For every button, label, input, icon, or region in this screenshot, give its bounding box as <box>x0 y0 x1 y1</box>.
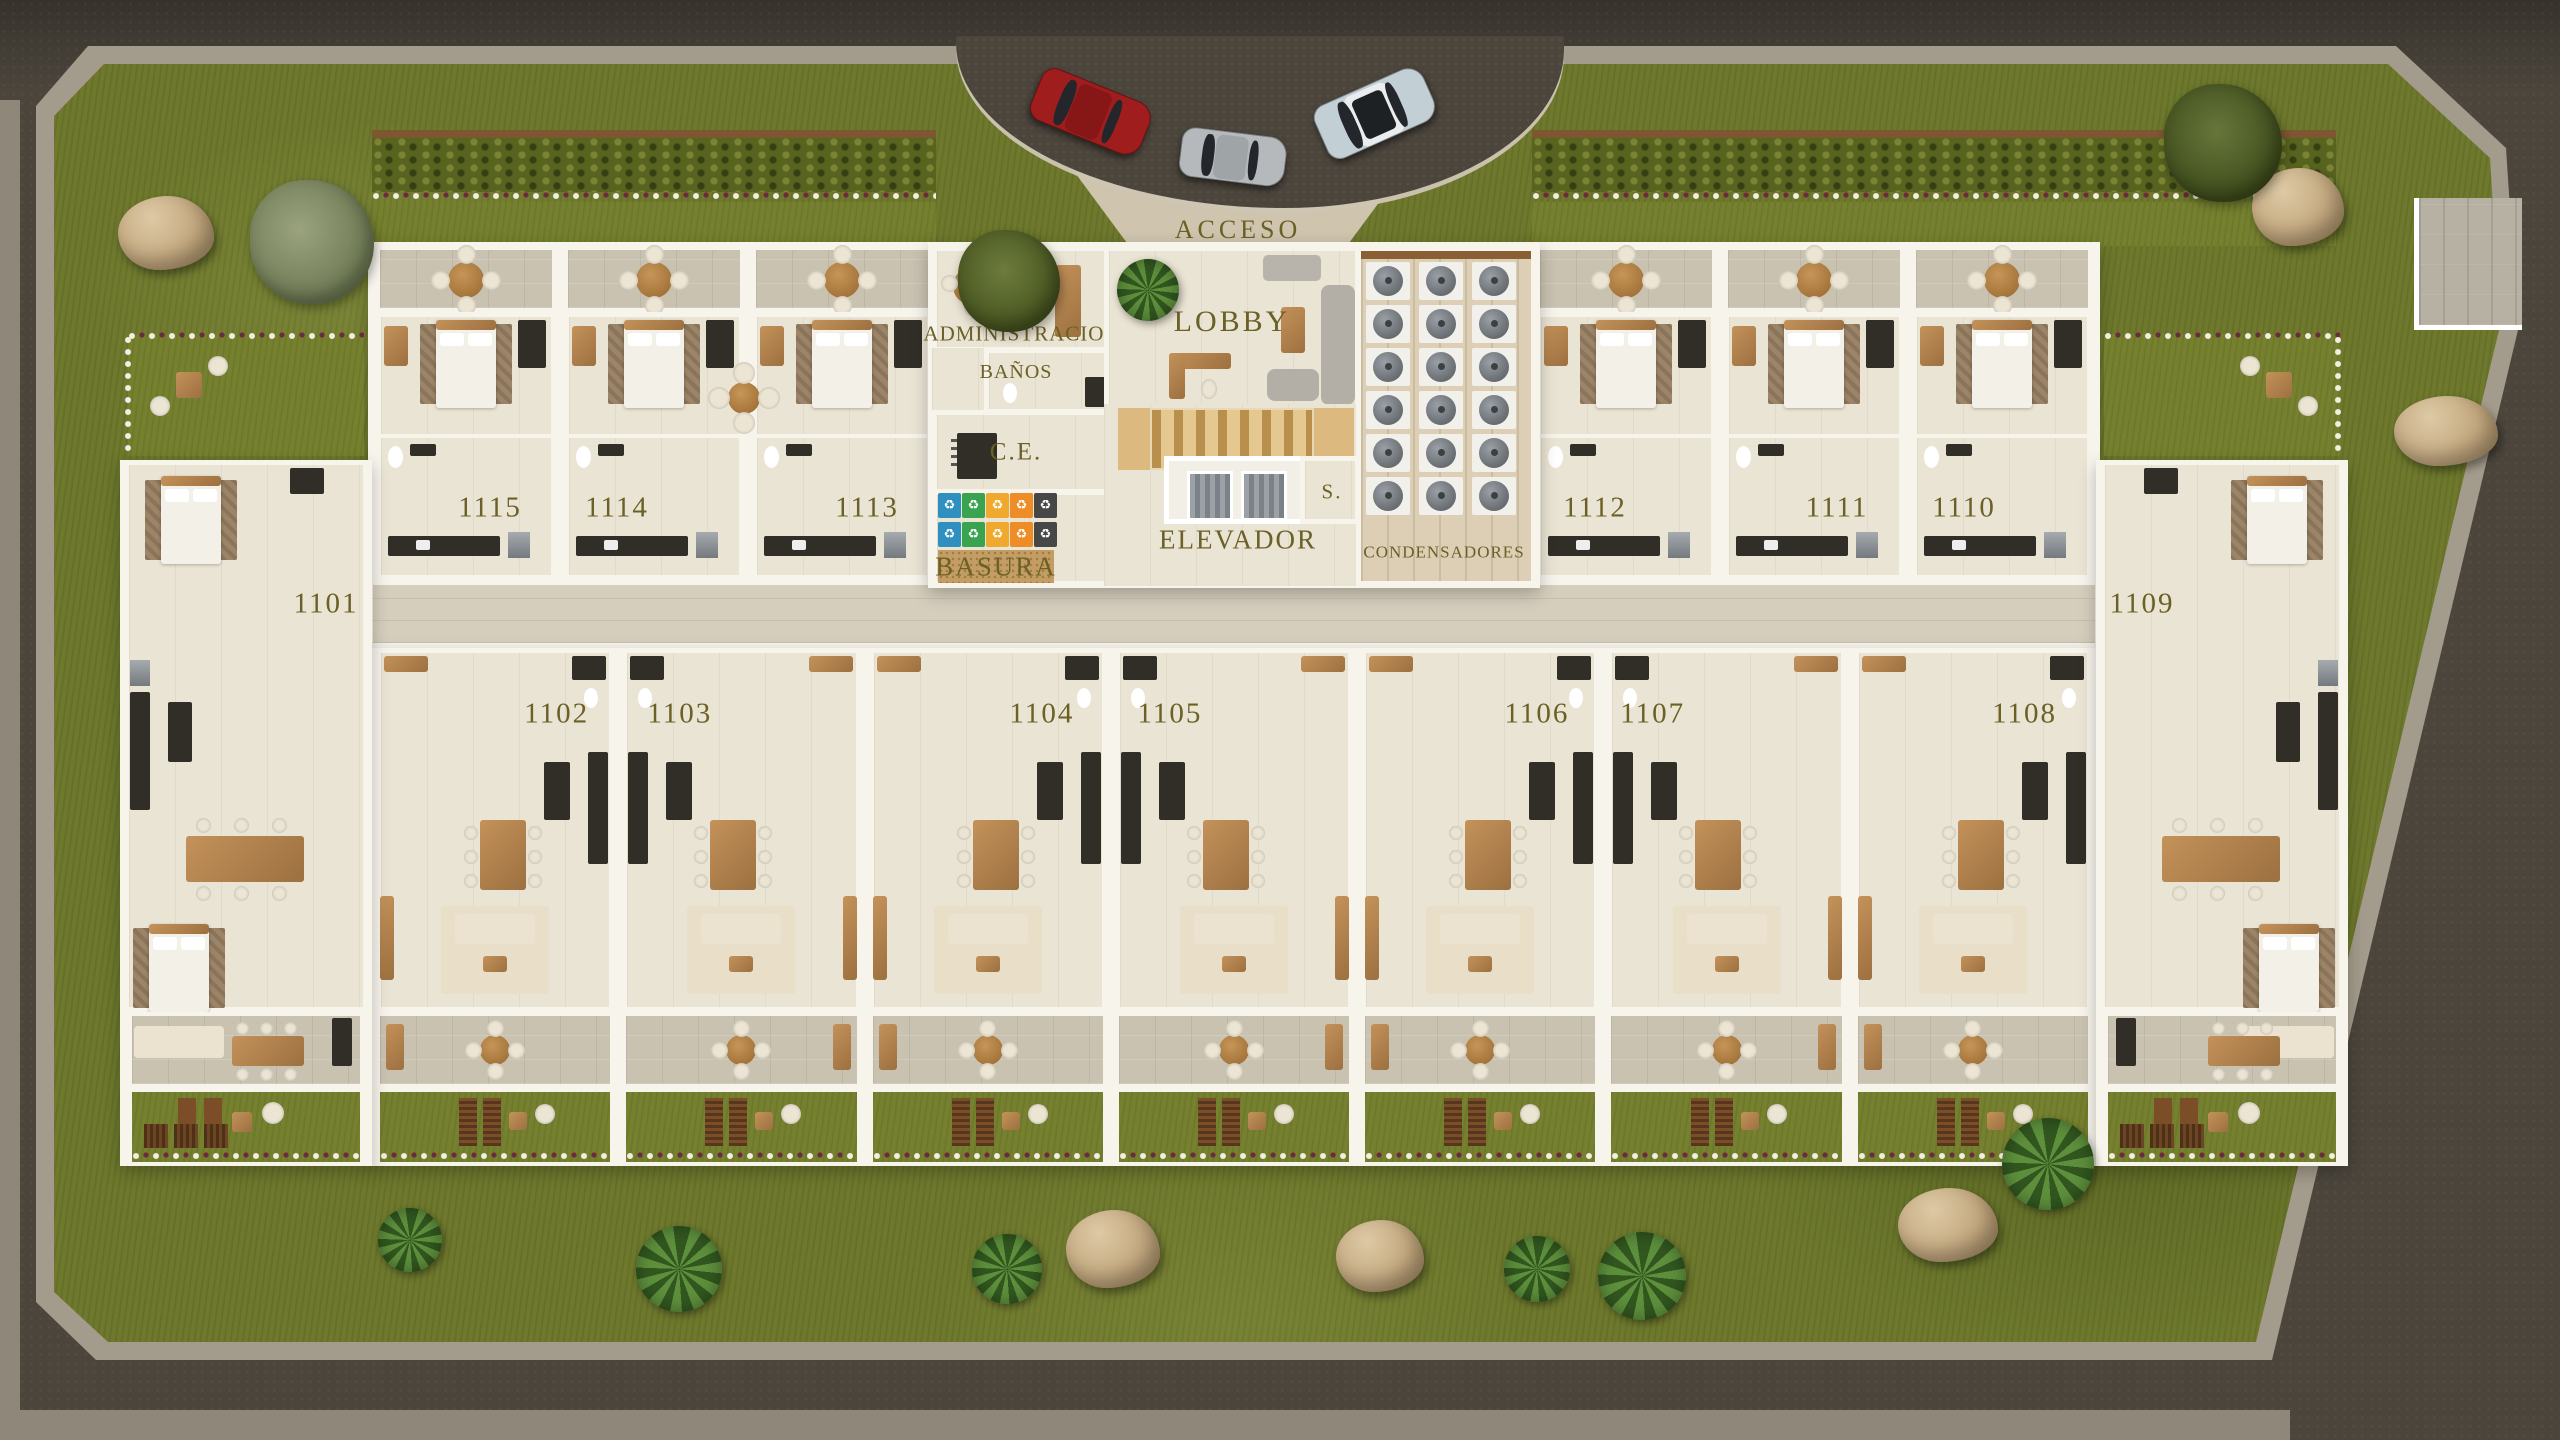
lounge-chair <box>1222 1098 1240 1146</box>
patio-chair <box>758 387 780 409</box>
kitchen-island <box>2022 762 2048 820</box>
condenser-unit <box>1472 348 1516 386</box>
dining-chair <box>2212 1068 2225 1081</box>
ce-label: C.E. <box>990 440 1042 465</box>
dining-chair <box>236 1022 249 1035</box>
dining-table <box>1958 820 2004 890</box>
dining-chair <box>196 818 211 833</box>
patio-table <box>824 262 860 298</box>
dining-chair <box>1021 850 1035 864</box>
terrace-bench <box>1864 1024 1882 1070</box>
pillow <box>1628 333 1652 346</box>
kitchen-island <box>544 762 570 820</box>
condenser-unit <box>1472 262 1516 300</box>
wall <box>756 434 928 438</box>
patio-table <box>1958 1035 1988 1065</box>
bath-vanity <box>598 444 624 456</box>
outdoor-pouf <box>1274 1104 1294 1124</box>
garden-chair <box>2240 356 2260 376</box>
dining-chair <box>957 850 971 864</box>
bath-block <box>1557 656 1591 680</box>
garden-table <box>2266 372 2292 398</box>
stairs-landing <box>1118 408 1150 470</box>
sofa <box>1687 914 1767 944</box>
kitchen-island <box>2276 702 2300 762</box>
patio-table <box>1219 1035 1249 1065</box>
patio-chair <box>708 387 730 409</box>
lounge-chair <box>459 1098 477 1146</box>
patio-chair <box>1779 271 1798 290</box>
side-table <box>1987 1112 2005 1130</box>
tv-console <box>380 896 394 980</box>
terrace-bench <box>1371 1024 1389 1070</box>
kitchen-island <box>1037 762 1063 820</box>
tv-console <box>873 896 887 980</box>
unit-lawn <box>372 202 936 246</box>
fridge <box>2318 660 2338 686</box>
wall <box>1916 434 2088 438</box>
palm-tree-icon <box>1117 259 1179 321</box>
sofa <box>701 914 781 944</box>
dining-chair <box>2260 1022 2273 1035</box>
dining-chair <box>1251 874 1265 888</box>
flower-border <box>626 1150 856 1163</box>
patio-chair <box>1642 271 1661 290</box>
patio-chair <box>733 1020 750 1037</box>
bed-headboard <box>149 924 209 934</box>
fridge <box>1856 532 1878 558</box>
outdoor-pouf <box>535 1104 555 1124</box>
flower-border <box>124 334 134 456</box>
bath-vanity <box>1758 444 1784 456</box>
fridge <box>130 660 150 686</box>
flower-border <box>128 330 364 342</box>
recycling-bins: ♻♻♻♻♻♻♻♻♻♻ <box>938 493 1058 551</box>
terrace-bench <box>833 1024 851 1070</box>
dining-chair <box>2236 1022 2249 1035</box>
outdoor-sofa <box>134 1026 224 1058</box>
bbq-grill <box>332 1018 352 1066</box>
bath-block <box>2144 468 2178 494</box>
patio-chair <box>1986 1042 2003 1059</box>
recycle-bin: ♻ <box>1010 493 1033 518</box>
toilet <box>764 446 779 468</box>
condenser-unit <box>1419 434 1463 472</box>
dining-chair <box>1942 850 1956 864</box>
dining-chair <box>2172 818 2187 833</box>
wall <box>1728 434 1900 438</box>
condenser-unit <box>1472 305 1516 343</box>
bed-headboard <box>2247 476 2307 486</box>
elevador-label: ELEVADOR <box>1159 527 1317 554</box>
kitchen-counter <box>2066 752 2086 864</box>
condenser-unit <box>1366 305 1410 343</box>
patio-chair <box>1718 1020 1735 1037</box>
patio-chair <box>1967 271 1986 290</box>
outdoor-pouf <box>1028 1104 1048 1124</box>
pillow <box>1976 333 2000 346</box>
lounge-chair <box>705 1098 723 1146</box>
patio-chair <box>465 1042 482 1059</box>
chair <box>941 275 958 292</box>
pillow <box>153 937 177 950</box>
bed-headboard <box>2259 924 2319 934</box>
flower-border <box>2108 1150 2336 1163</box>
dining-table <box>1465 820 1511 890</box>
kitchen-counter <box>388 536 500 556</box>
rock <box>2394 396 2498 466</box>
coffee-table <box>729 956 753 972</box>
condenser-unit <box>1366 348 1410 386</box>
pillow <box>844 333 868 346</box>
palm-bush <box>636 1226 722 1312</box>
pillow <box>193 489 217 502</box>
lounge-chair <box>1468 1098 1486 1146</box>
pillow <box>1816 333 1840 346</box>
lobby-sectional-sofa <box>1321 285 1355 405</box>
patio-chair <box>1204 1042 1221 1059</box>
patio-chair <box>1001 1042 1018 1059</box>
pillow <box>628 333 652 346</box>
garden-chair <box>150 396 170 416</box>
patio-chair <box>733 412 755 434</box>
unit-number-label: 1107 <box>1620 700 1685 729</box>
patio-chair <box>1740 1042 1757 1059</box>
kitchen-island <box>1529 762 1555 820</box>
toilet <box>1924 446 1939 468</box>
lounge-chair <box>729 1098 747 1146</box>
desk <box>1544 326 1568 366</box>
patio-chair <box>711 1042 728 1059</box>
patio-chair <box>1450 1042 1467 1059</box>
wardrobe <box>1678 320 1706 368</box>
car-roof <box>1212 134 1249 182</box>
patio-chair <box>1226 1020 1243 1037</box>
roof-edge <box>1361 251 1531 259</box>
unit-lawn <box>1532 202 2336 246</box>
garden-chair <box>208 356 228 376</box>
planter-box <box>174 1124 198 1148</box>
pillow <box>440 333 464 346</box>
patio-chair <box>487 1020 504 1037</box>
patio-chair <box>1472 1063 1489 1080</box>
closet <box>809 656 853 672</box>
patio-chair <box>457 245 476 264</box>
palm-bush <box>1598 1232 1686 1320</box>
bath-block <box>1615 656 1649 680</box>
dining-chair <box>2248 886 2263 901</box>
unit-number-label: 1106 <box>1504 700 1569 729</box>
planter-box <box>204 1124 228 1148</box>
palm-bush <box>2002 1118 2094 1210</box>
recycle-bin: ♻ <box>1034 522 1057 547</box>
kitchen-counter <box>1121 752 1141 864</box>
garden-chair <box>2298 396 2318 416</box>
patio-chair <box>1993 245 2012 264</box>
sink <box>1576 540 1590 550</box>
terrace-bench <box>879 1024 897 1070</box>
pillow <box>468 333 492 346</box>
kitchen-counter <box>1081 752 1101 864</box>
recycle-bin: ♻ <box>986 493 1009 518</box>
fridge <box>1668 532 1690 558</box>
patio-chair <box>1617 245 1636 264</box>
unit-number-label: 1103 <box>647 700 712 729</box>
desk <box>760 326 784 366</box>
patio-chair <box>1805 245 1824 264</box>
palm-bush <box>378 1208 442 1272</box>
sink <box>1764 540 1778 550</box>
patio-chair <box>958 1042 975 1059</box>
reception-stool <box>1201 379 1217 399</box>
recycle-bin: ♻ <box>962 493 985 518</box>
lounge-chair <box>1961 1098 1979 1146</box>
flower-border <box>1119 1150 1349 1163</box>
sofa <box>1194 914 1274 944</box>
condenser-unit <box>1366 434 1410 472</box>
reception-desk <box>1169 353 1185 399</box>
dining-table <box>186 836 304 882</box>
tv-console <box>1828 896 1842 980</box>
wall <box>380 434 552 438</box>
kitchen-counter <box>588 752 608 864</box>
residential-floor-plan-rendering: ACCESO 111511141113111211111110110211031… <box>0 0 2560 1440</box>
rock <box>118 196 214 270</box>
bed-headboard <box>1596 320 1656 330</box>
patio-chair <box>833 245 852 264</box>
bath-block <box>572 656 606 680</box>
pillow <box>1788 333 1812 346</box>
bed-headboard <box>812 320 872 330</box>
wardrobe <box>518 320 546 368</box>
lobby-sofa <box>1267 369 1319 401</box>
rock <box>1336 1220 1424 1292</box>
kitchen-counter <box>1573 752 1593 864</box>
outdoor-dining-table <box>2208 1036 2280 1066</box>
dining-chair <box>284 1068 297 1081</box>
bath-vanity <box>410 444 436 456</box>
toilet <box>1003 383 1017 403</box>
side-table <box>1248 1112 1266 1130</box>
pillow <box>2004 333 2028 346</box>
sofa <box>1440 914 1520 944</box>
patio-table <box>448 262 484 298</box>
lounge-chair <box>1198 1098 1216 1146</box>
patio-chair <box>1247 1042 1264 1059</box>
sink <box>792 540 806 550</box>
outdoor-pouf <box>1767 1104 1787 1124</box>
garden-table <box>176 372 202 398</box>
condenser-unit <box>1366 391 1410 429</box>
kitchen-counter <box>130 692 150 810</box>
bottom-sidewalk <box>0 1410 2290 1440</box>
desk <box>384 326 408 366</box>
kitchen-counter <box>1924 536 2036 556</box>
unit-number-label: 1104 <box>1009 700 1074 729</box>
sofa <box>1933 914 2013 944</box>
unit-number-label: 1115 <box>458 494 522 523</box>
private-garden <box>2104 334 2340 456</box>
dining-chair <box>236 1068 249 1081</box>
dining-table <box>710 820 756 890</box>
dining-chair <box>1187 874 1201 888</box>
coffee-table <box>1961 956 1985 972</box>
lounge-chair <box>1444 1098 1462 1146</box>
elevator-shaft <box>1241 471 1287 521</box>
lounge-chair <box>1691 1098 1709 1146</box>
side-table <box>1494 1112 1512 1130</box>
basura-label: BASURA <box>935 554 1057 581</box>
patio-table <box>1796 262 1832 298</box>
sink <box>1952 540 1966 550</box>
unit-number-label: 1105 <box>1137 700 1202 729</box>
dining-chair <box>1942 826 1956 840</box>
desk <box>1732 326 1756 366</box>
bed-headboard <box>436 320 496 330</box>
unit-number-label: 1110 <box>1932 494 1996 523</box>
left-sidewalk <box>0 100 20 1440</box>
unit-number-label: 1101 <box>294 590 359 619</box>
patio-table <box>636 262 672 298</box>
recycle-bin: ♻ <box>962 522 985 547</box>
side-table <box>232 1112 252 1132</box>
dining-chair <box>2236 1068 2249 1081</box>
side-table <box>509 1112 527 1130</box>
coffee-table <box>1715 956 1739 972</box>
palm-bush <box>972 1234 1042 1304</box>
tv-console <box>1858 896 1872 980</box>
dining-chair <box>1021 874 1035 888</box>
lounge-chair <box>976 1098 994 1146</box>
condenser-unit <box>1419 391 1463 429</box>
dining-chair <box>1251 850 1265 864</box>
closet <box>1794 656 1838 672</box>
patio-chair <box>1493 1042 1510 1059</box>
fridge <box>884 532 906 558</box>
bath-vanity <box>1570 444 1596 456</box>
sink <box>604 540 618 550</box>
condensadores-label: CONDENSADORES <box>1363 544 1524 561</box>
patio-chair <box>1697 1042 1714 1059</box>
pillow <box>2279 489 2303 502</box>
dining-table <box>1695 820 1741 890</box>
unit-number-label: 1109 <box>2110 590 2175 619</box>
palm-bush <box>1504 1236 1570 1302</box>
desk <box>1920 326 1944 366</box>
pillow <box>656 333 680 346</box>
outdoor-dining-table <box>232 1036 304 1066</box>
patio-chair <box>1226 1063 1243 1080</box>
dining-chair <box>2248 818 2263 833</box>
kitchen-island <box>1651 762 1677 820</box>
flower-border <box>2334 334 2344 456</box>
condenser-unit <box>1472 434 1516 472</box>
kitchen-counter <box>1548 536 1660 556</box>
closet <box>1369 656 1413 672</box>
pillow <box>2291 937 2315 950</box>
patio-chair <box>733 362 755 384</box>
dining-chair <box>1187 826 1201 840</box>
hammock-chair <box>262 1102 284 1124</box>
bath-block <box>630 656 664 680</box>
dining-chair <box>272 818 287 833</box>
unit-number-label: 1112 <box>1563 494 1627 523</box>
patio-chair <box>1830 271 1849 290</box>
patio-chair <box>508 1042 525 1059</box>
patio-table <box>480 1035 510 1065</box>
garden-wood-edge <box>372 130 936 138</box>
patio-chair <box>482 271 501 290</box>
patio-chair <box>754 1042 771 1059</box>
kitchen-counter <box>2318 692 2338 810</box>
lounge-chair <box>952 1098 970 1146</box>
dining-chair <box>196 886 211 901</box>
acceso-label: ACCESO <box>1175 217 1302 243</box>
planter-box <box>144 1124 168 1148</box>
dining-chair <box>1187 850 1201 864</box>
paved-pad <box>2414 198 2522 330</box>
dining-chair <box>2172 886 2187 901</box>
patio-chair <box>2018 271 2037 290</box>
dining-chair <box>234 886 249 901</box>
condenser-grid <box>1366 262 1516 515</box>
side-table <box>1002 1112 1020 1130</box>
patio-chair <box>807 271 826 290</box>
kitchen-island <box>1159 762 1185 820</box>
condenser-unit <box>1472 477 1516 515</box>
dining-chair <box>260 1068 273 1081</box>
planter-box <box>2150 1124 2174 1148</box>
patio-table <box>1984 262 2020 298</box>
unit-number-label: 1108 <box>1992 700 2057 729</box>
sofa <box>455 914 535 944</box>
sink <box>416 540 430 550</box>
toilet <box>576 446 591 468</box>
dining-chair <box>2212 1022 2225 1035</box>
recycle-bin: ♻ <box>986 522 1009 547</box>
recycle-bin: ♻ <box>938 493 961 518</box>
dining-chair <box>1251 826 1265 840</box>
toilet <box>1736 446 1751 468</box>
wardrobe <box>894 320 922 368</box>
coffee-table <box>483 956 507 972</box>
terrace-bench <box>1325 1024 1343 1070</box>
lobby-label: LOBBY <box>1174 307 1291 337</box>
condenser-unit <box>1366 477 1410 515</box>
side-table <box>755 1112 773 1130</box>
s-label: S. <box>1322 482 1343 503</box>
bath-block <box>1123 656 1157 680</box>
rock <box>1066 1210 1160 1288</box>
unit-number-label: 1111 <box>1806 494 1869 523</box>
coffee-table <box>976 956 1000 972</box>
dining-chair <box>284 1022 297 1035</box>
patio-chair <box>1472 1020 1489 1037</box>
condenser-unit <box>1419 305 1463 343</box>
toilet <box>1077 688 1091 708</box>
recycle-bin: ♻ <box>938 522 961 547</box>
closet <box>877 656 921 672</box>
pillow <box>181 937 205 950</box>
kitchen-counter <box>1613 752 1633 864</box>
flower-border <box>380 1150 610 1163</box>
flower-border <box>1611 1150 1841 1163</box>
car-rear-glass <box>1246 140 1260 181</box>
dining-table <box>2162 836 2280 882</box>
dining-chair <box>957 874 971 888</box>
kitchen-counter <box>764 536 876 556</box>
terrace-bench <box>386 1024 404 1070</box>
